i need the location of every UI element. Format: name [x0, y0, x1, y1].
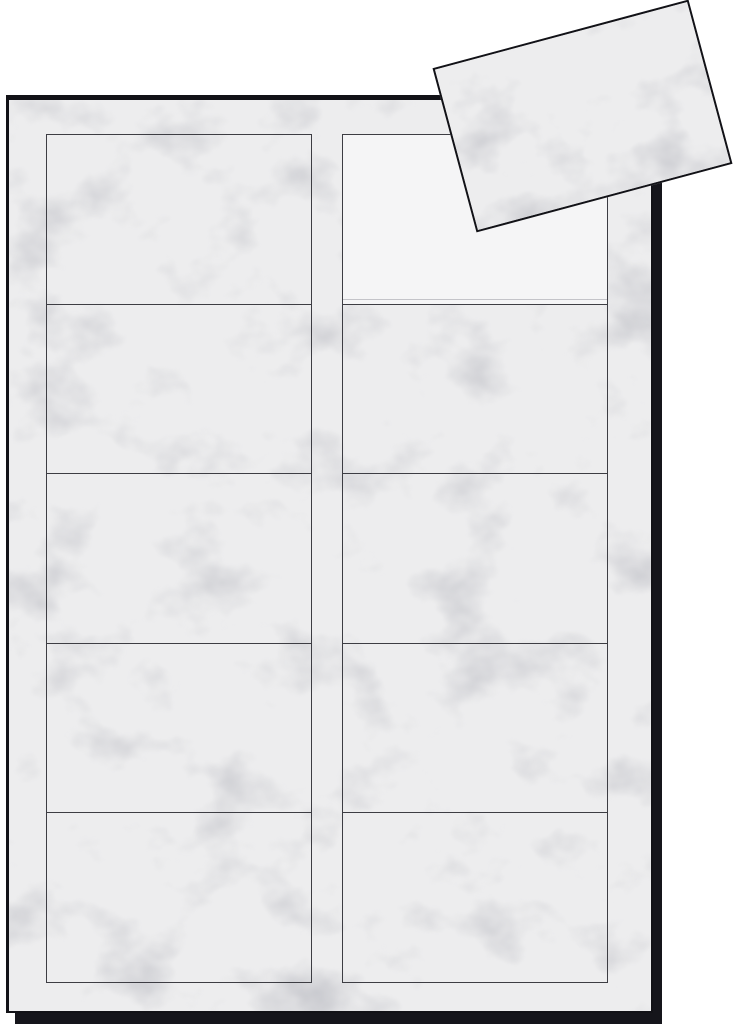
business-card-sheet	[6, 95, 653, 1013]
card-slot	[343, 644, 607, 814]
card-slot	[47, 644, 311, 814]
detached-business-card	[433, 0, 733, 232]
card-slot	[47, 305, 311, 475]
card-column-left	[46, 134, 312, 983]
card-slot	[343, 474, 607, 644]
card-slot	[343, 305, 607, 475]
card-slot	[47, 813, 311, 982]
marble-texture	[435, 2, 730, 230]
card-column-right	[342, 134, 608, 983]
product-photo	[0, 0, 736, 1024]
card-slot	[343, 813, 607, 982]
card-slot	[47, 135, 311, 305]
card-slot	[47, 474, 311, 644]
